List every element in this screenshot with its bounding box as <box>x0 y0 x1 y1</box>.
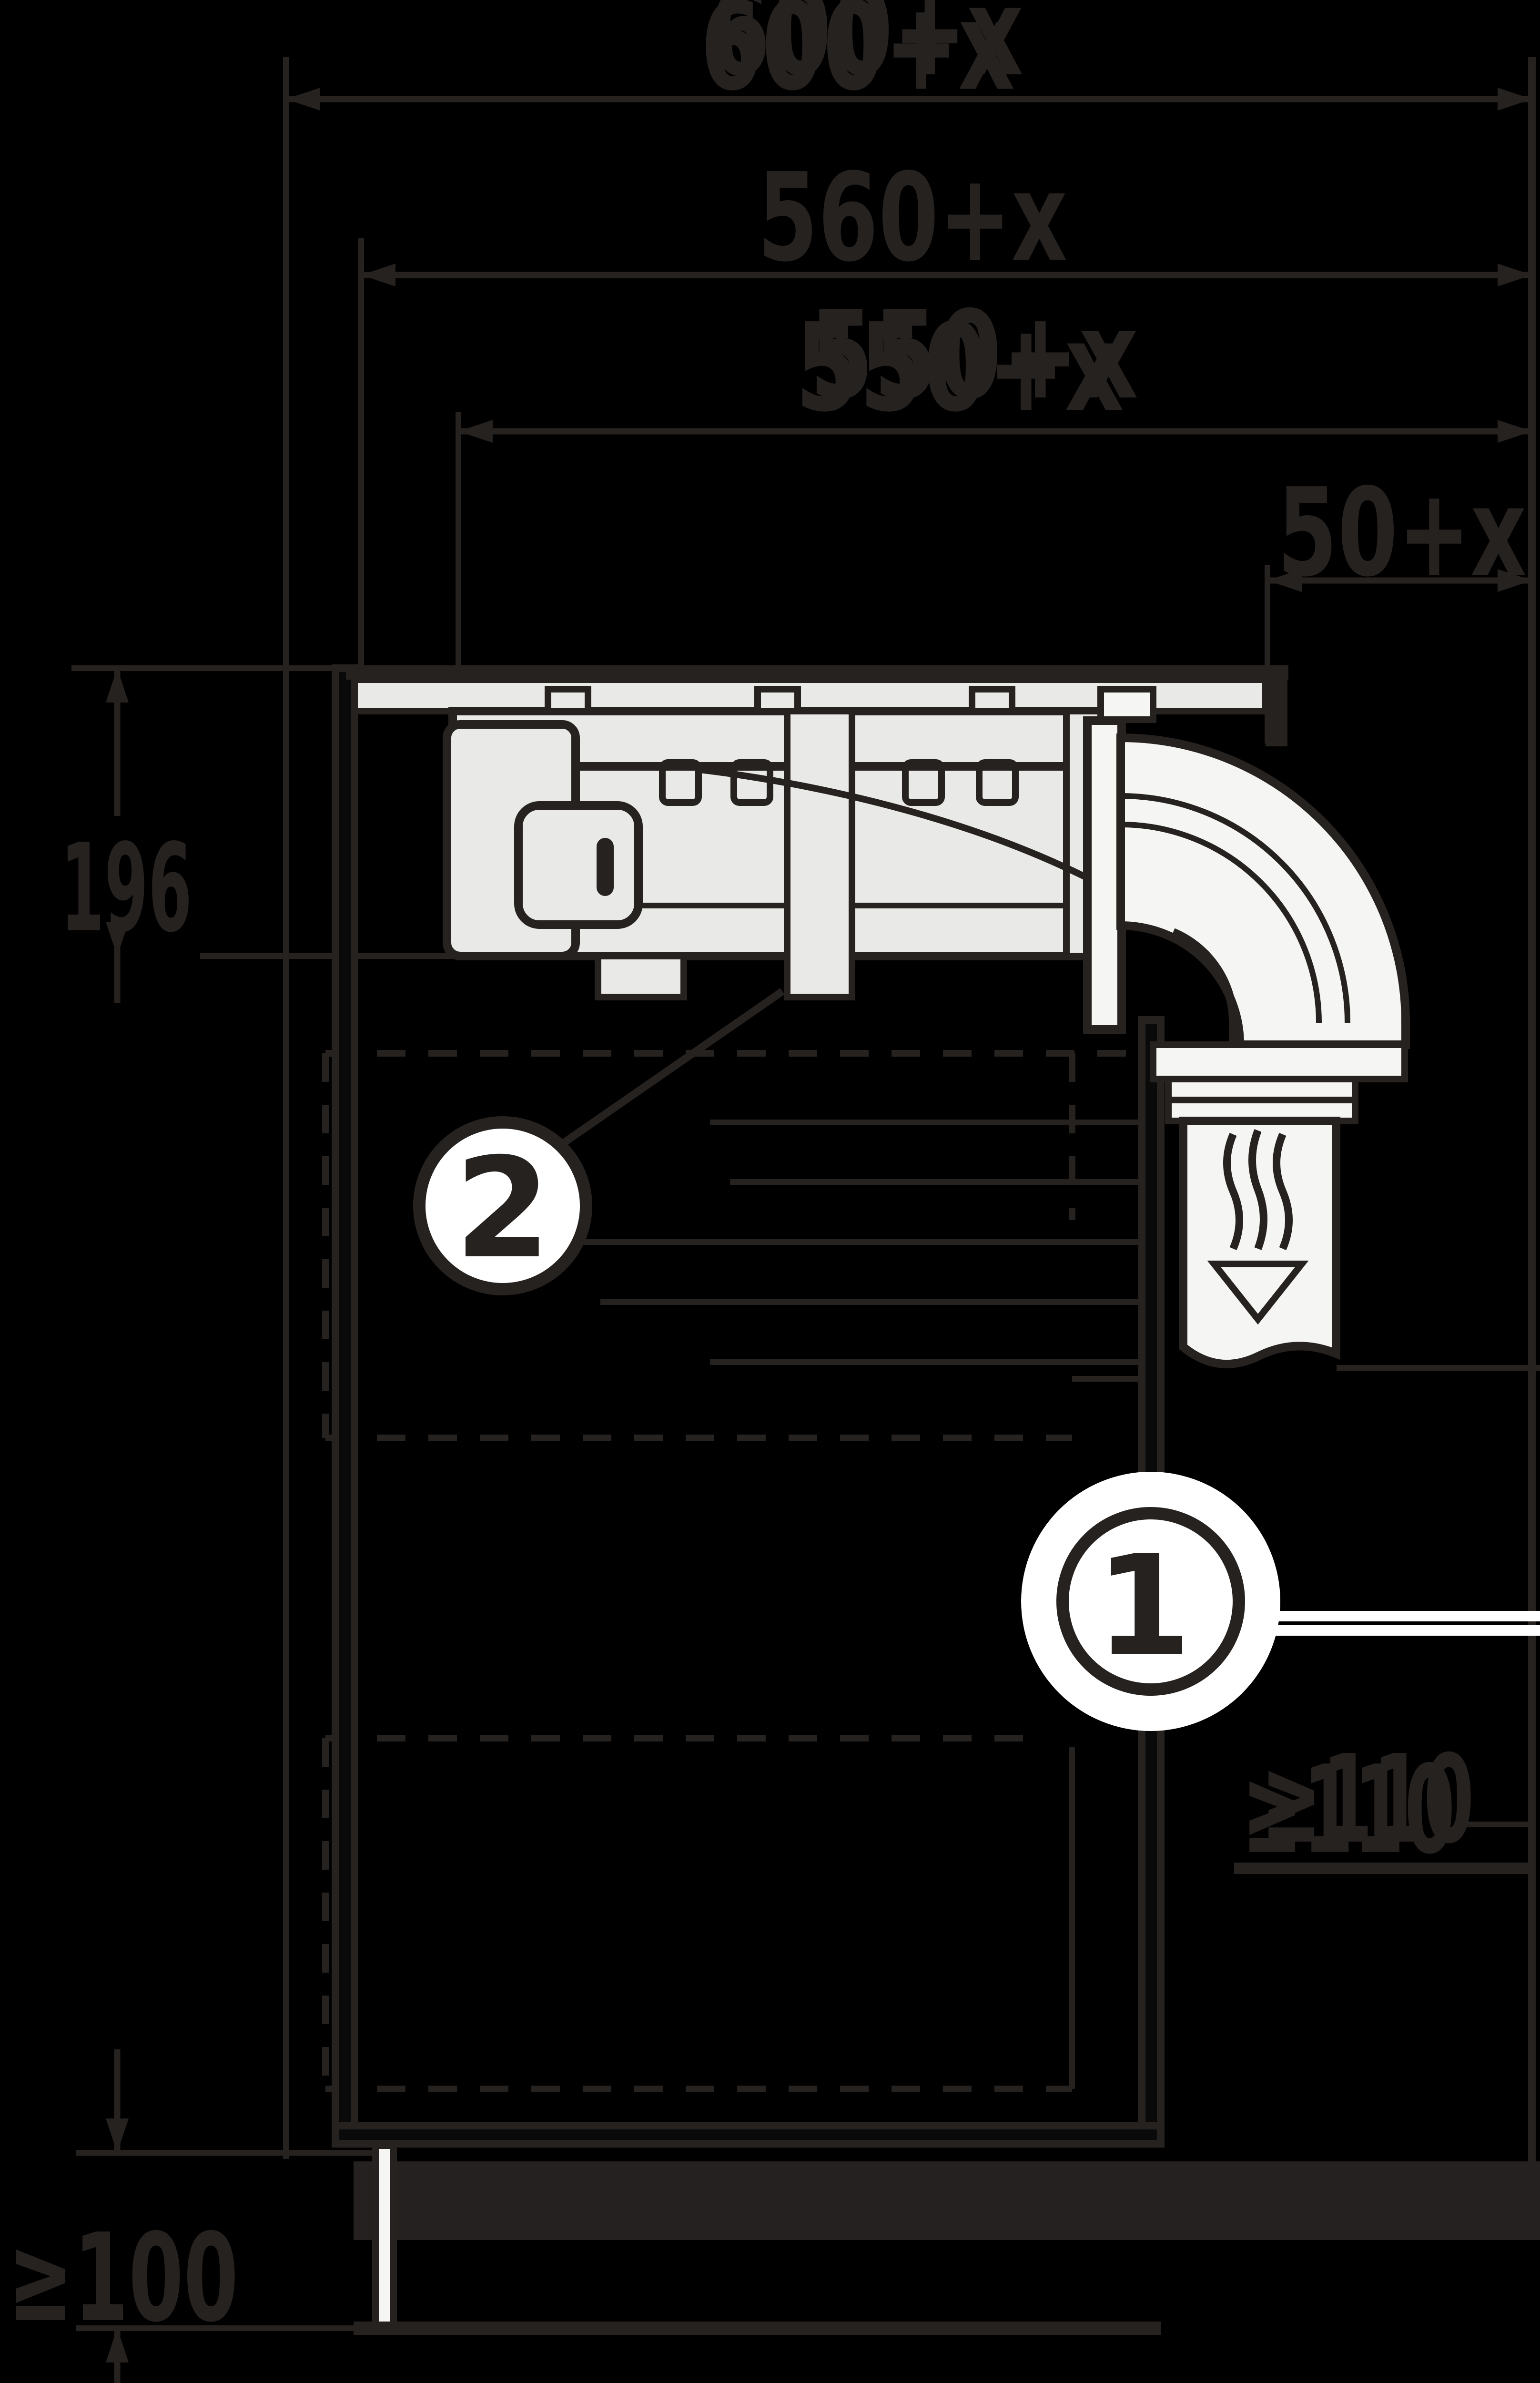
callout-1-number: 1 <box>1095 1526 1192 1687</box>
dim-label-110: ≥110 <box>1242 1740 1455 1881</box>
dim-label-100: ≥100 <box>8 2208 239 2349</box>
dim-label-600x: 600+x <box>700 0 1015 118</box>
mount-clip-3 <box>972 689 1012 711</box>
cabinet-left-side-panel <box>335 668 355 2144</box>
cabinet-bottom-panel <box>335 2126 1161 2144</box>
plinth-panel <box>375 2146 394 2328</box>
duct-outlet-flange <box>1153 1045 1405 1079</box>
dim-label-196: 196 <box>61 818 192 959</box>
worktop-cut-edge <box>1266 665 1287 746</box>
hob-glass <box>346 665 1288 680</box>
installation-diagram: 2 1 600+x 600+x 560+x 550+x 550+x 50+x 1… <box>0 0 1540 2383</box>
mount-clip-1 <box>548 689 588 711</box>
unit-front-panel <box>518 805 638 925</box>
hanger-bracket <box>787 711 852 997</box>
unit-foot <box>598 956 684 997</box>
diagram-page: 2 1 600+x 600+x 560+x 550+x 550+x 50+x 1… <box>0 0 1540 2383</box>
callout-2-number: 2 <box>455 1129 551 1289</box>
callout-1: 1 <box>1021 1472 1280 1731</box>
dim-label-560x: 560+x <box>758 147 1067 289</box>
under-cabinet-band <box>354 2161 1540 2240</box>
duct-elbow <box>1121 738 1406 1045</box>
dim-label-550x: 550+x <box>795 297 1124 439</box>
duct-top-clip <box>1101 689 1153 720</box>
exhaust-duct <box>1087 689 1406 1364</box>
downdraft-unit <box>447 689 1141 997</box>
dim-label-50x: 50+x <box>1277 462 1527 604</box>
